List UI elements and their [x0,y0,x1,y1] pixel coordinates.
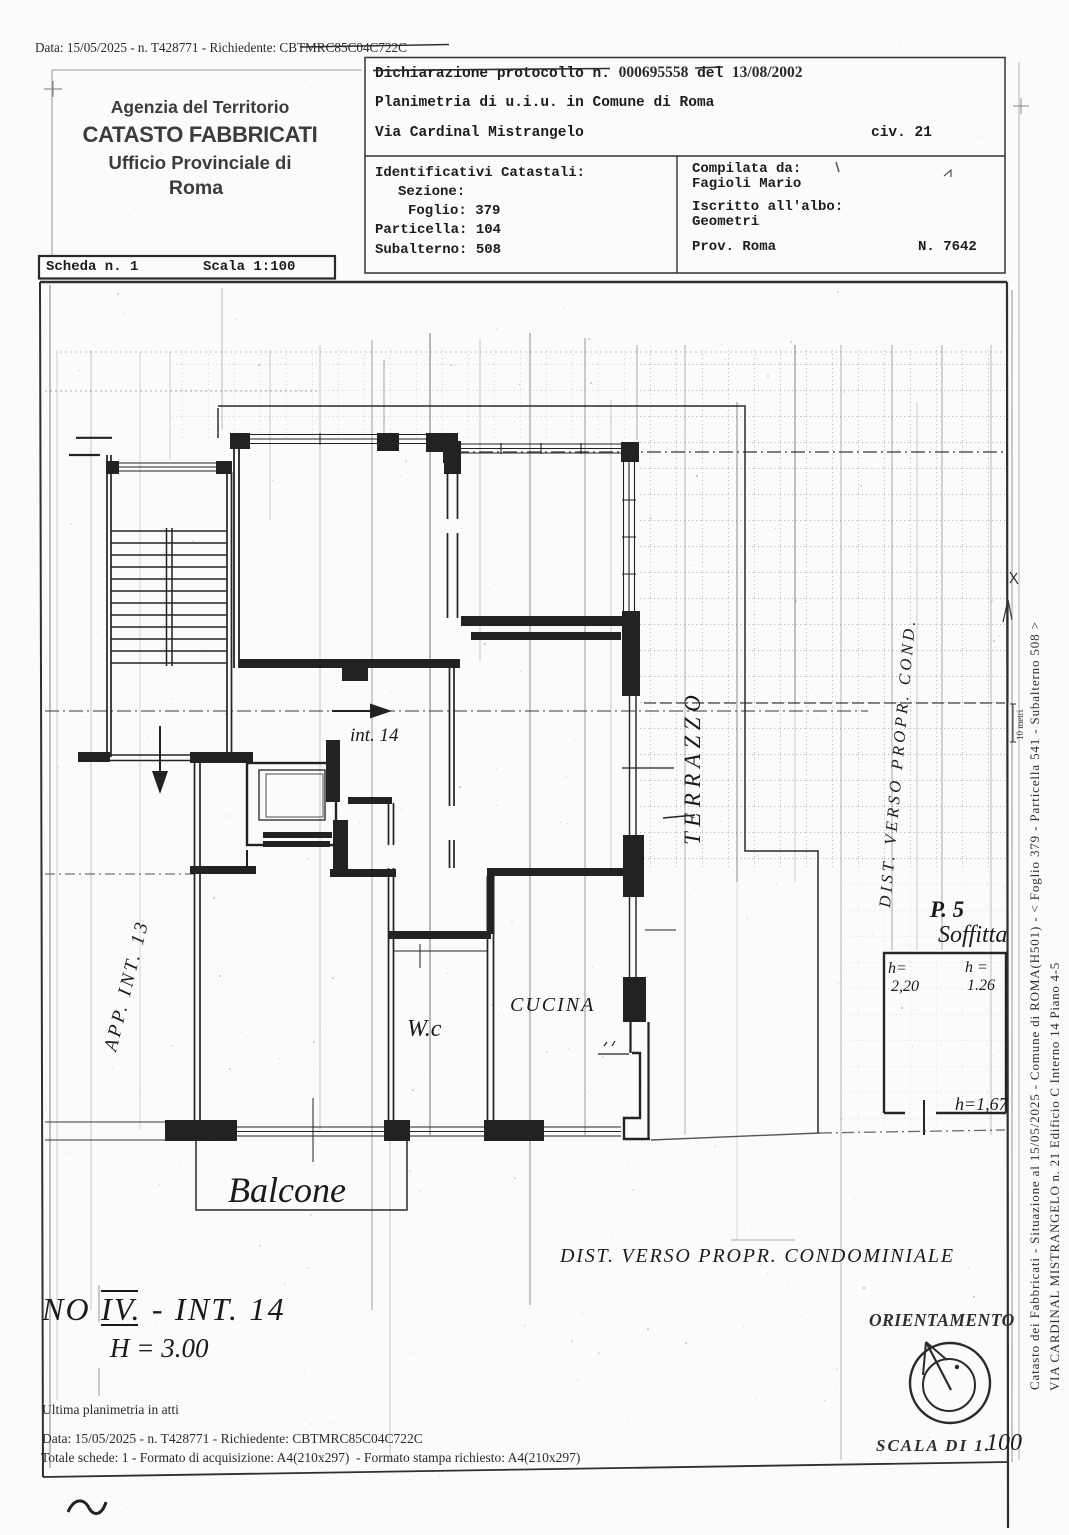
svg-text:CUCINA: CUCINA [510,994,595,1016]
svg-text:SCALA DI 1.: SCALA DI 1. [876,1436,991,1455]
svg-text:W.c: W.c [407,1016,442,1042]
svg-text:Balcone: Balcone [228,1170,346,1210]
svg-text:VIA CARDINAL MISTRANGELO n. 21: VIA CARDINAL MISTRANGELO n. 21 Edificio … [1047,962,1062,1391]
svg-text:TERRAZZO: TERRAZZO [680,690,705,845]
svg-text:h=1,67: h=1,67 [955,1094,1009,1114]
svg-text:Soffitta: Soffitta [938,922,1007,948]
svg-text:10 metri: 10 metri [1015,709,1025,740]
svg-text:h =: h = [965,959,988,976]
svg-text:2,20: 2,20 [891,978,919,995]
svg-text:Catasto dei Fabbricati - Situa: Catasto dei Fabbricati - Situazione al 1… [1027,621,1042,1390]
svg-text:ORIENTAMENTO: ORIENTAMENTO [869,1310,1015,1330]
svg-text:NO IV. - INT. 14: NO IV. - INT. 14 [41,1291,286,1327]
svg-text:h=: h= [888,960,907,977]
svg-text:100: 100 [986,1430,1022,1456]
svg-text:1.26: 1.26 [967,977,995,994]
svg-text:DIST. VERSO PROPR. CONDOMINIAL: DIST. VERSO PROPR. CONDOMINIALE [559,1245,955,1267]
svg-text:APP. INT. 13: APP. INT. 13 [100,918,153,1056]
svg-text:P. 5: P. 5 [929,897,964,922]
svg-text:int. 14: int. 14 [350,725,399,746]
svg-text:H = 3.00: H = 3.00 [109,1333,209,1363]
